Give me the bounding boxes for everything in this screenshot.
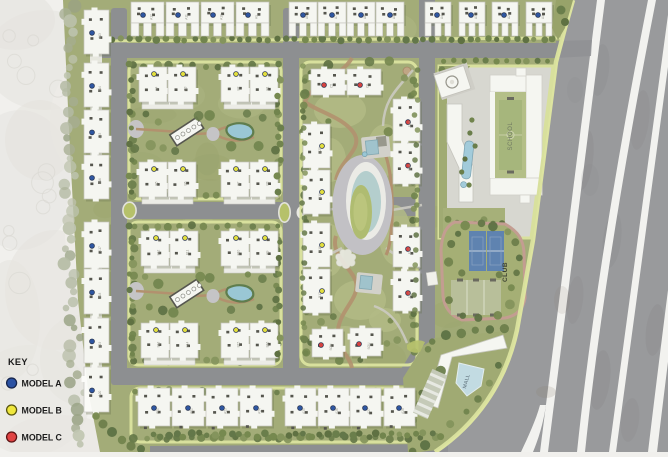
- svg-text:MODEL A: MODEL A: [22, 379, 63, 389]
- svg-text:KEY: KEY: [8, 357, 28, 367]
- svg-text:MODEL B: MODEL B: [22, 406, 62, 416]
- svg-text:MODEL C: MODEL C: [22, 433, 63, 443]
